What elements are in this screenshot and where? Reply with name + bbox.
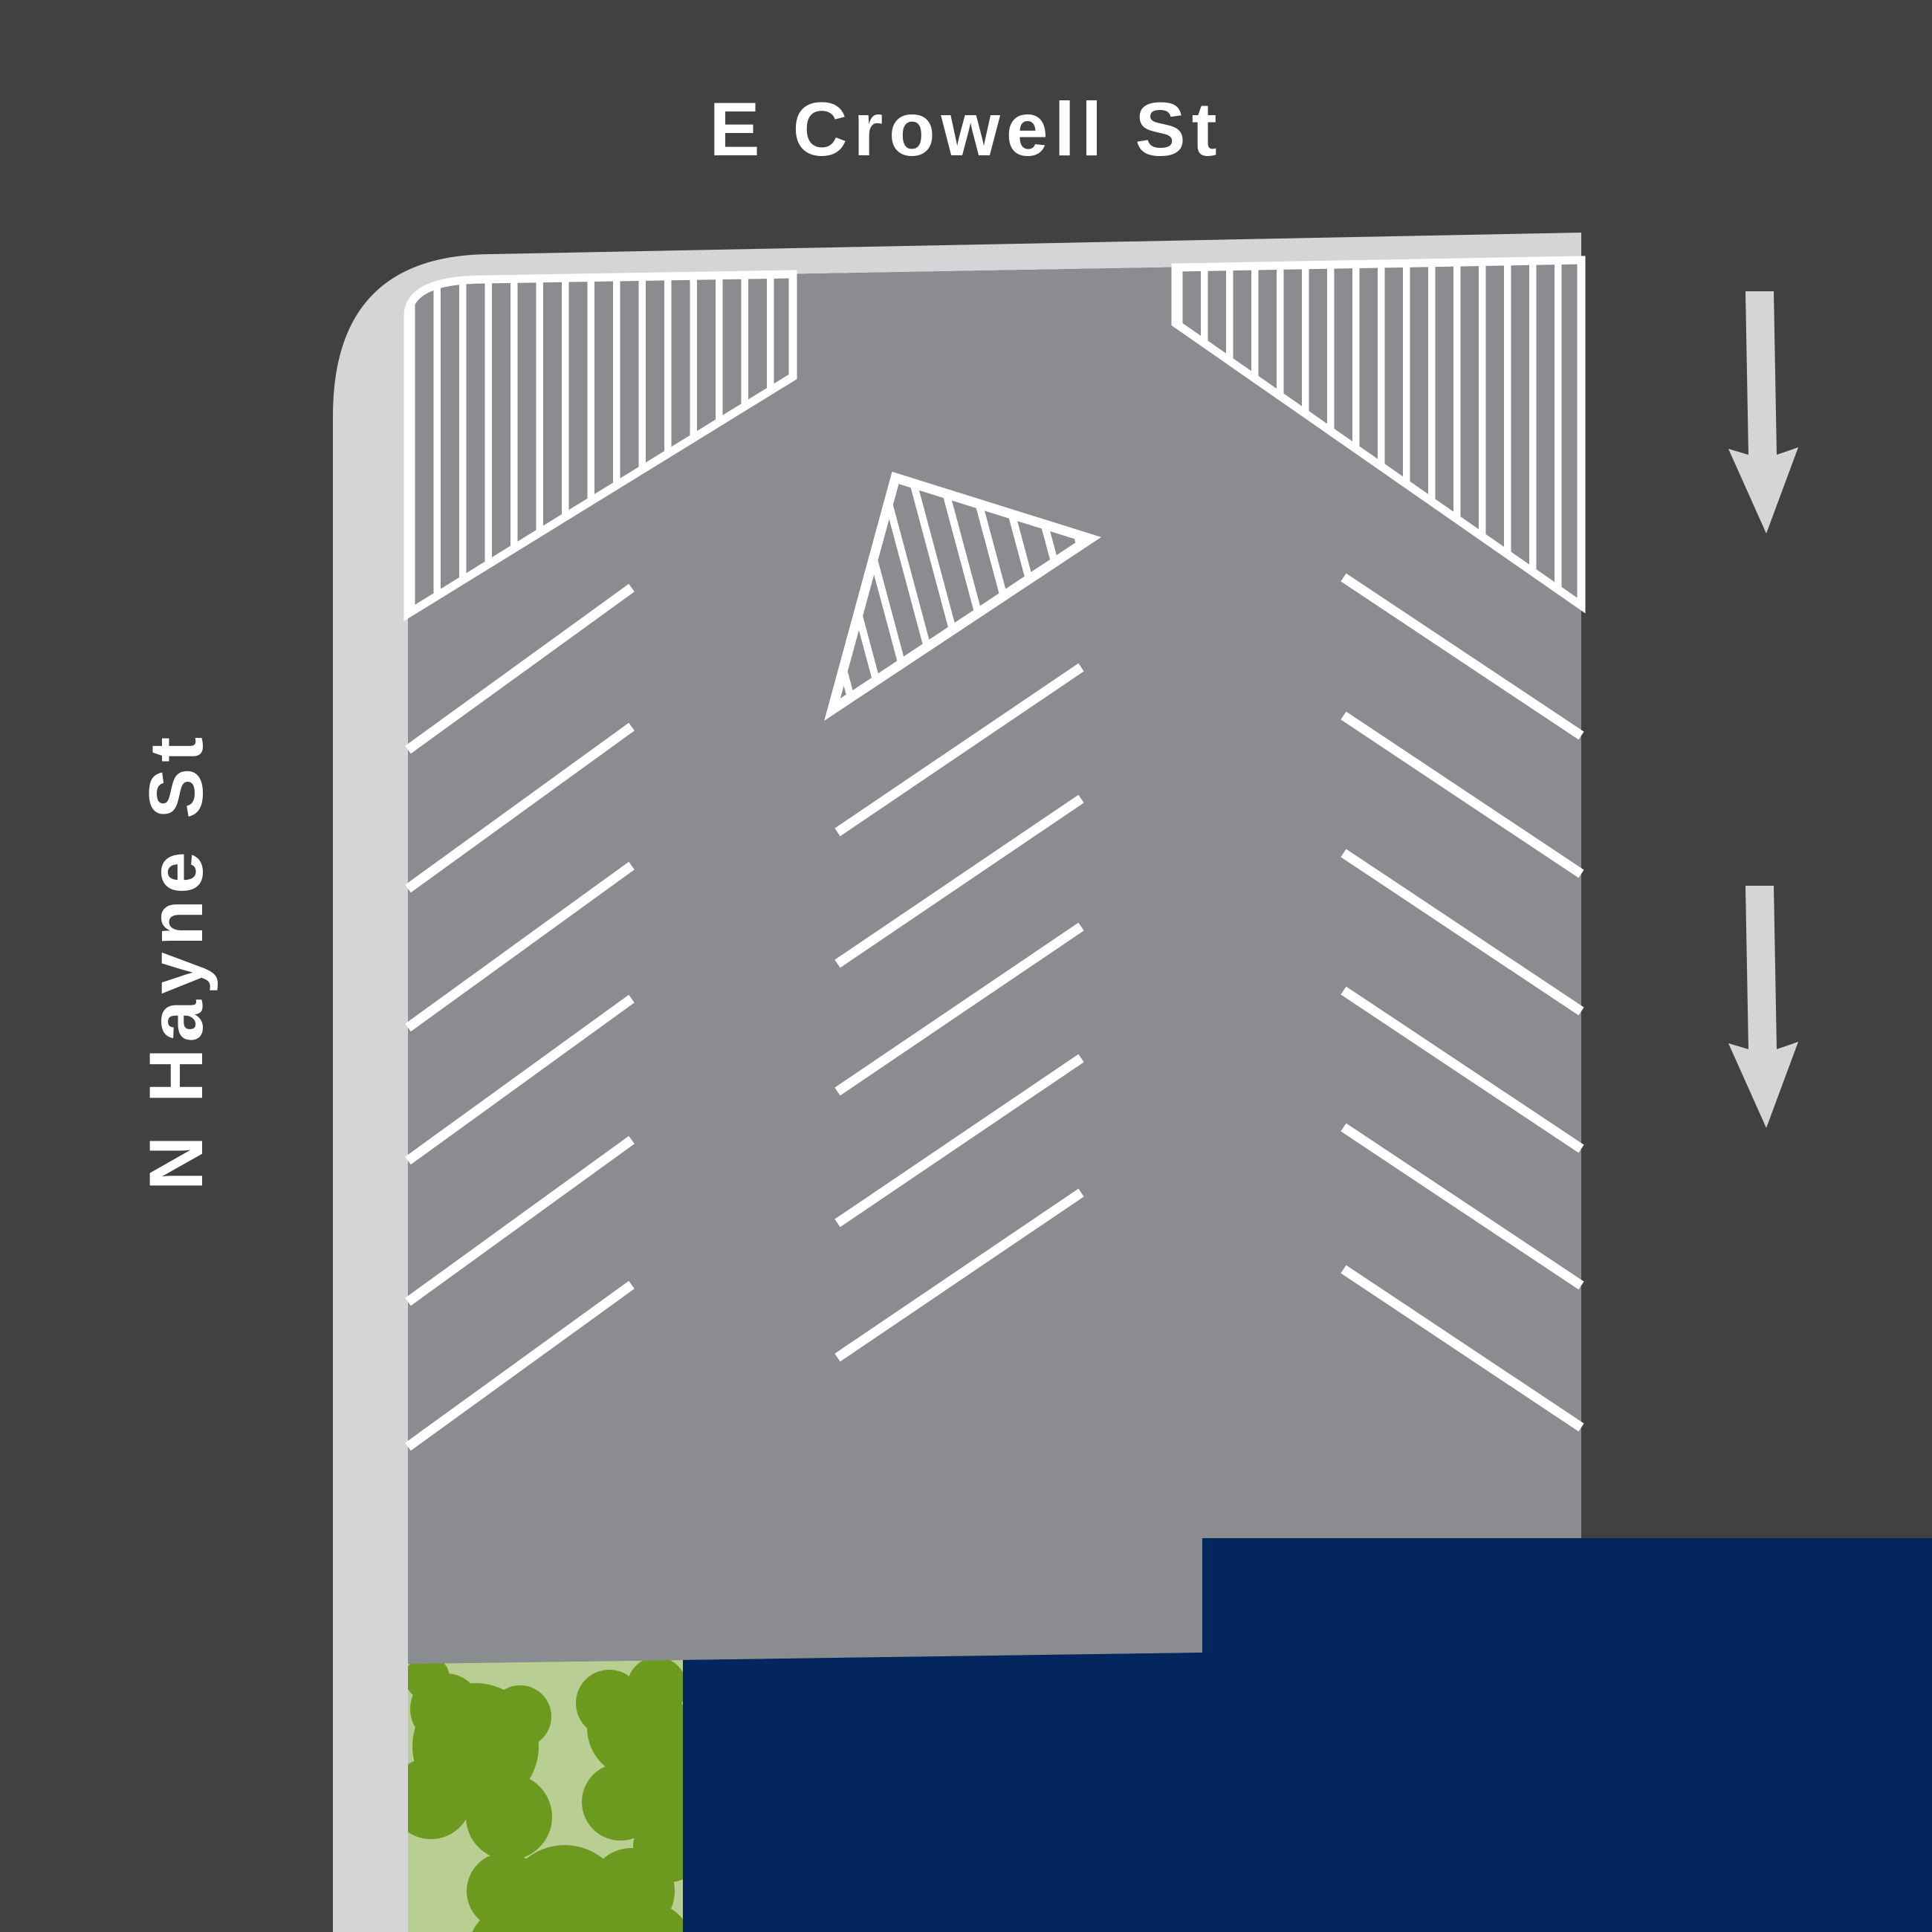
street-label-e-crowell: E Crowell St — [709, 87, 1222, 172]
bush-icon — [467, 1845, 693, 1932]
street-label-n-hayne: N Hayne St — [134, 731, 218, 1191]
parking-lot-site-map: E Crowell St N Hayne St — [0, 0, 1932, 1932]
